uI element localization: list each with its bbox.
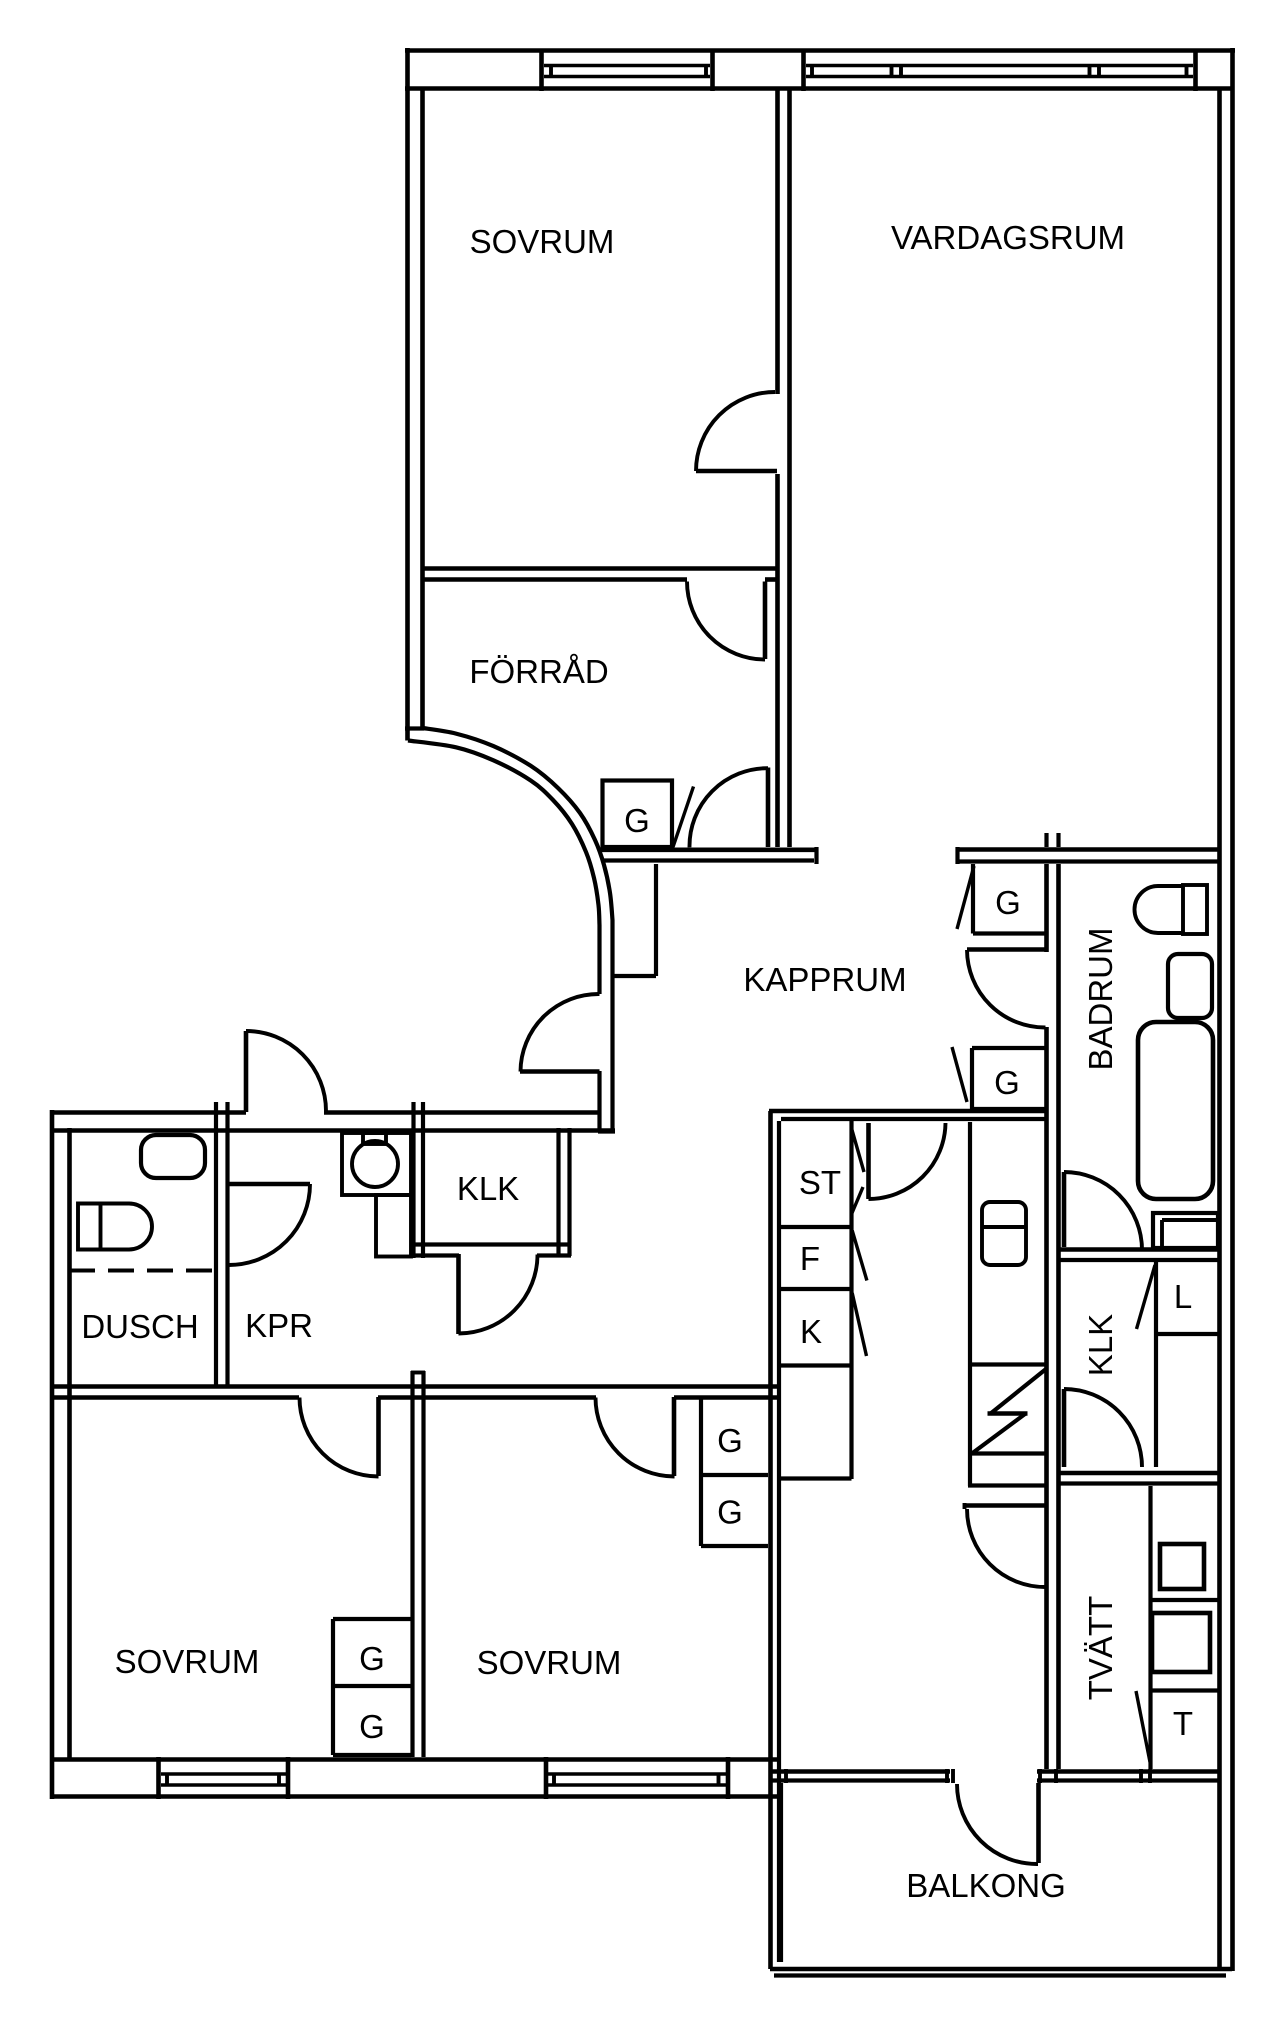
svg-text:KPR: KPR: [245, 1307, 313, 1344]
svg-text:G: G: [359, 1640, 385, 1677]
svg-text:SOVRUM: SOVRUM: [470, 223, 615, 260]
svg-text:G: G: [995, 884, 1021, 921]
svg-text:KAPPRUM: KAPPRUM: [743, 961, 906, 998]
svg-text:KLK: KLK: [457, 1170, 519, 1207]
svg-text:T: T: [1173, 1705, 1193, 1742]
svg-text:SOVRUM: SOVRUM: [477, 1644, 622, 1681]
svg-text:L: L: [1174, 1278, 1192, 1315]
svg-text:G: G: [717, 1422, 743, 1459]
svg-text:VARDAGSRUM: VARDAGSRUM: [891, 219, 1125, 256]
svg-text:FÖRRÅD: FÖRRÅD: [469, 653, 608, 690]
svg-text:G: G: [624, 802, 650, 839]
svg-text:SOVRUM: SOVRUM: [115, 1643, 260, 1680]
svg-text:G: G: [994, 1064, 1020, 1101]
svg-text:ST: ST: [799, 1164, 841, 1201]
svg-text:BADRUM: BADRUM: [1082, 927, 1119, 1070]
svg-text:BALKONG: BALKONG: [906, 1867, 1066, 1904]
svg-text:F: F: [800, 1240, 820, 1277]
svg-text:TVÄTT: TVÄTT: [1082, 1596, 1119, 1701]
svg-text:DUSCH: DUSCH: [81, 1308, 198, 1345]
svg-text:KLK: KLK: [1082, 1314, 1119, 1376]
svg-text:G: G: [717, 1494, 743, 1531]
svg-text:G: G: [359, 1708, 385, 1745]
svg-text:K: K: [800, 1313, 822, 1350]
